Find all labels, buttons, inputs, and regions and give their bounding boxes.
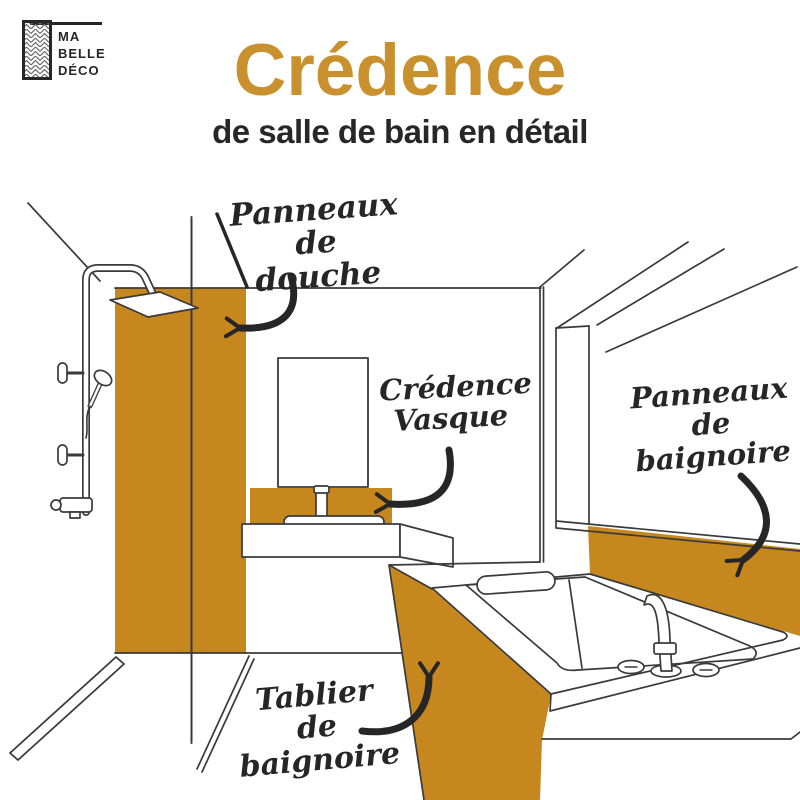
hand-shower-icon — [86, 367, 115, 438]
infographic-canvas: MA BELLE DÉCO Crédence de salle de bain … — [0, 0, 800, 800]
mirror — [278, 358, 368, 487]
sink-cabinet-side — [400, 524, 453, 567]
shower-knob-icon — [58, 363, 83, 465]
label-line: de douche — [229, 222, 405, 301]
label-credence-vasque: Crédence Vasque — [378, 368, 521, 438]
shower-drain — [10, 657, 124, 760]
label-panneaux-de-douche: Panneaux de douche — [227, 188, 406, 300]
label-panneaux-de-baignoire: Panneaux de baignoire — [617, 372, 800, 478]
sink-faucet-icon — [314, 486, 329, 518]
arrow-vasque — [390, 450, 450, 504]
shower-wall-panel — [115, 288, 246, 653]
bathtub-headrest — [476, 571, 555, 594]
bathtub-wall-panel — [588, 526, 800, 636]
sink-cabinet — [242, 524, 400, 557]
label-tablier-de-baignoire: Tablier de baignoire — [218, 672, 416, 785]
